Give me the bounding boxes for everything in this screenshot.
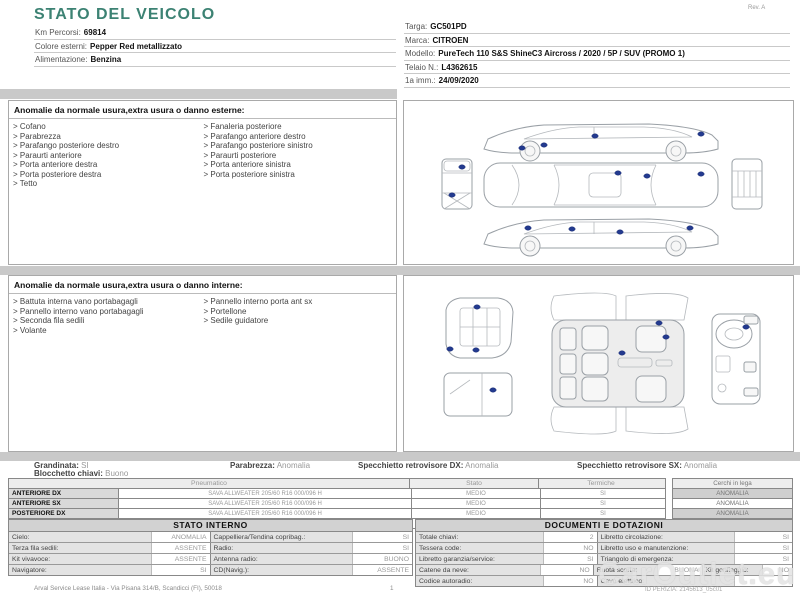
info-label: Alimentazione:: [35, 55, 87, 64]
damage-marker: [743, 325, 749, 329]
interior-damage-list-right: Pannello interno porta ant sxPortelloneS…: [203, 297, 392, 335]
detail-value: SI: [152, 565, 211, 575]
exterior-diagram-svg: [404, 101, 793, 264]
detail-label: Cappelliera/Tendina copribag.:: [211, 532, 354, 542]
damage-marker: [490, 388, 496, 392]
detail-value: BUONO: [353, 554, 412, 564]
vehicle-info-row: Targa:GC501PD: [404, 20, 790, 34]
damage-item: Porta posteriore sinistra: [203, 170, 392, 180]
info-value: 69814: [84, 28, 106, 37]
detail-row: Tessera code:NOLibretto uso e manutenzio…: [416, 543, 792, 554]
detail-value: ASSENTE: [152, 554, 211, 564]
alloy-row: ANOMALIA: [673, 489, 792, 499]
parcel-shelf-view: [444, 373, 512, 416]
detail-label: Terza fila sedili:: [9, 543, 152, 553]
info-value: Pepper Red metallizzato: [90, 42, 182, 51]
exterior-diagram: [403, 100, 794, 265]
car-plan-view: [484, 163, 718, 207]
perizia-id: ID PERIZIA: 2145613_05c01: [645, 587, 722, 593]
documenti-title: DOCUMENTI E DOTAZIONI: [416, 520, 792, 532]
detail-label: Radio:: [211, 543, 354, 553]
tyre-header-stato: Stato: [410, 479, 539, 488]
tyre-cell: SI: [541, 489, 665, 498]
stato-interno-table: STATO INTERNO Cielo:ANOMALIACappelliera/…: [8, 519, 413, 576]
tyre-row: ANTERIORE SXSAVA ALLWEATER 205/60 R16 00…: [9, 499, 665, 509]
exterior-damage-list-right: Fanaleria posterioreParafango anteriore …: [203, 122, 392, 189]
divider-band: [0, 89, 397, 99]
detail-row: Navigatore:SICD(Navig.):ASSENTE: [9, 565, 412, 575]
damage-item: Parafango posteriore destro: [13, 141, 203, 151]
info-value: L4362615: [441, 63, 477, 72]
damage-marker: [541, 143, 547, 147]
tyre-row: ANTERIORE DXSAVA ALLWEATER 205/60 R16 00…: [9, 489, 665, 499]
damage-item: Tetto: [13, 179, 203, 189]
detail-label: Codice autoradio:: [416, 576, 544, 586]
detail-row: Totale chiavi:2Libretto circolazione:SI: [416, 532, 792, 543]
info-value: 24/09/2020: [439, 76, 479, 85]
interior-damage-list-left: Battuta interna vano portabagagliPannell…: [13, 297, 203, 335]
damage-item: Paraurti anteriore: [13, 151, 203, 161]
damage-marker: [698, 172, 704, 176]
alloy-row: ANOMALIA: [673, 499, 792, 509]
damage-item: Portellone: [203, 307, 392, 317]
vehicle-info-row: Alimentazione:Benzina: [34, 53, 396, 67]
alloy-cell: ANOMALIA: [673, 489, 792, 498]
damage-item: Seconda fila sedili: [13, 316, 203, 326]
exterior-damage-markers: [449, 132, 704, 234]
damage-marker: [473, 348, 479, 352]
tyre-cell: ANTERIORE SX: [9, 499, 119, 508]
detail-label: Totale chiavi:: [416, 532, 544, 542]
detail-label: Libretto circolazione:: [598, 532, 736, 542]
damage-item: Pannello interno vano portabagagli: [13, 307, 203, 317]
damage-marker: [656, 321, 662, 325]
interior-anomalies-box: Anomalie da normale usura,extra usura o …: [8, 275, 397, 452]
damage-item: Parafango anteriore destro: [203, 132, 392, 142]
car-side-view-bottom: [484, 219, 718, 256]
detail-row: Kit vivavoce:ASSENTEAntenna radio:BUONO: [9, 554, 412, 565]
damage-marker: [698, 132, 704, 136]
divider-band: [0, 266, 800, 275]
damage-marker: [525, 226, 531, 230]
tyre-header-pneumatico: Pneumatico: [9, 479, 410, 488]
summary-specchietto-sx: Specchietto retrovisore SX: Anomalia: [577, 461, 717, 470]
interior-diagram-svg: [404, 276, 793, 451]
tyre-cell: SI: [541, 499, 665, 508]
tyre-cell: ANTERIORE DX: [9, 489, 119, 498]
detail-value: SI: [735, 543, 792, 553]
footer-page-number: 1: [390, 585, 394, 592]
vehicle-info-row: Colore esterni:Pepper Red metallizzato: [34, 40, 396, 54]
damage-item: Pannello interno porta ant sx: [203, 297, 392, 307]
damage-marker: [459, 165, 465, 169]
detail-row: Terza fila sedili:ASSENTERadio:SI: [9, 543, 412, 554]
detail-value: SI: [353, 532, 412, 542]
alloy-cell: ANOMALIA: [673, 509, 792, 518]
damage-marker: [569, 227, 575, 231]
damage-item: Paraurti posteriore: [203, 151, 392, 161]
damage-marker: [592, 134, 598, 138]
vehicle-info-row: Marca:CITROEN: [404, 34, 790, 48]
tyre-header-cerchi: Cerchi in lega: [673, 479, 792, 488]
info-value: GC501PD: [430, 22, 466, 31]
info-label: Marca:: [405, 36, 429, 45]
tyre-cell: MEDIO: [412, 509, 541, 518]
detail-value: ASSENTE: [353, 565, 412, 575]
detail-value: NO: [544, 576, 598, 586]
damage-item: Cofano: [13, 122, 203, 132]
dashboard-view: [712, 314, 760, 404]
info-label: Modello:: [405, 49, 435, 58]
detail-label: Libretto uso e manutenzione:: [598, 543, 736, 553]
car-rear-view: [732, 159, 762, 209]
exterior-anomalies-title: Anomalie da normale usura,extra usura o …: [9, 101, 396, 119]
exterior-damage-list-left: CofanoParabrezzaParafango posteriore des…: [13, 122, 203, 189]
detail-label: CD(Navig.):: [211, 565, 354, 575]
vehicle-info-row: 1a imm.:24/09/2020: [404, 74, 790, 88]
revision-label: Rev. A: [748, 5, 765, 11]
alloy-cell: ANOMALIA: [673, 499, 792, 508]
tyre-row: POSTERIORE DXSAVA ALLWEATER 205/60 R16 0…: [9, 509, 665, 519]
detail-label: Antenna radio:: [211, 554, 354, 564]
damage-marker: [617, 230, 623, 234]
alloy-row: ANOMALIA: [673, 509, 792, 519]
cabin-plan-view: [551, 293, 688, 434]
tyre-cell: SAVA ALLWEATER 205/60 R16 000/096 H: [119, 499, 412, 508]
detail-value: ASSENTE: [152, 543, 211, 553]
damage-marker: [644, 174, 650, 178]
car-front-view: [442, 159, 472, 209]
footer-company: Arval Service Lease Italia - Via Pisana …: [34, 585, 222, 592]
detail-row: Cielo:ANOMALIACappelliera/Tendina coprib…: [9, 532, 412, 543]
detail-label: Navigatore:: [9, 565, 152, 575]
interior-diagram: [403, 275, 794, 452]
summary-specchietto-dx: Specchietto retrovisore DX: Anomalia: [358, 461, 499, 470]
info-value: PureTech 110 S&S ShineC3 Aircross / 2020…: [438, 49, 685, 58]
damage-marker: [687, 226, 693, 230]
info-value: Benzina: [90, 55, 121, 64]
damage-marker: [474, 305, 480, 309]
damage-marker: [447, 347, 453, 351]
divider-band: [0, 452, 800, 461]
vehicle-info-left: Km Percorsi:69814Colore esterni:Pepper R…: [34, 26, 396, 67]
damage-item: Battuta interna vano portabagagli: [13, 297, 203, 307]
detail-value: SI: [735, 532, 792, 542]
summary-blocchetto: Blocchetto chiavi: Buono: [34, 469, 128, 478]
damage-marker: [615, 171, 621, 175]
damage-item: Porta anteriore sinistra: [203, 160, 392, 170]
info-label: Telaio N.:: [405, 63, 438, 72]
interior-anomalies-title: Anomalie da normale usura,extra usura o …: [9, 276, 396, 294]
detail-value: SI: [544, 554, 598, 564]
detail-label: Tessera code:: [416, 543, 544, 553]
vehicle-info-row: Telaio N.:L4362615: [404, 61, 790, 75]
detail-value: NO: [541, 565, 593, 575]
damage-marker: [663, 335, 669, 339]
damage-item: Parabrezza: [13, 132, 203, 142]
info-label: 1a imm.:: [405, 76, 436, 85]
tyre-cell: POSTERIORE DX: [9, 509, 119, 518]
info-value: CITROEN: [432, 36, 468, 45]
tyre-header-termiche: Termiche: [539, 479, 663, 488]
detail-value: 2: [544, 532, 598, 542]
page-title: STATO DEL VEICOLO: [34, 6, 215, 24]
vehicle-condition-report: STATO DEL VEICOLO Rev. A Km Percorsi:698…: [0, 0, 800, 600]
stato-interno-title: STATO INTERNO: [9, 520, 412, 532]
summary-parabrezza: Parabrezza: Anomalia: [230, 461, 310, 470]
damage-item: Fanaleria posteriore: [203, 122, 392, 132]
tyre-cell: SAVA ALLWEATER 205/60 R16 000/096 H: [119, 489, 412, 498]
damage-marker: [619, 351, 625, 355]
detail-label: Cielo:: [9, 532, 152, 542]
tyre-cell: SI: [541, 509, 665, 518]
info-label: Km Percorsi:: [35, 28, 81, 37]
tyre-cell: MEDIO: [412, 489, 541, 498]
car-side-view-top: [484, 124, 718, 161]
vehicle-info-right: Targa:GC501PDMarca:CITROENModello:PureTe…: [404, 20, 790, 88]
detail-label: Libretto garanzia/service:: [416, 554, 544, 564]
damage-item: Porta anteriore destra: [13, 160, 203, 170]
damage-marker: [519, 146, 525, 150]
damage-marker: [449, 193, 455, 197]
damage-item: Volante: [13, 326, 203, 336]
detail-value: NO: [544, 543, 598, 553]
detail-label: Catene da neve:: [416, 565, 541, 575]
damage-item: Parafango posteriore sinistro: [203, 141, 392, 151]
detail-value: ANOMALIA: [152, 532, 211, 542]
tyre-cell: SAVA ALLWEATER 205/60 R16 000/096 H: [119, 509, 412, 518]
info-label: Colore esterni:: [35, 42, 87, 51]
exterior-anomalies-box: Anomalie da normale usura,extra usura o …: [8, 100, 397, 265]
vehicle-info-row: Modello:PureTech 110 S&S ShineC3 Aircros…: [404, 47, 790, 61]
damage-item: Porta posteriore destra: [13, 170, 203, 180]
damage-item: Sedile guidatore: [203, 316, 392, 326]
detail-label: Kit vivavoce:: [9, 554, 152, 564]
detail-value: SI: [353, 543, 412, 553]
info-label: Targa:: [405, 22, 427, 31]
tyre-cell: MEDIO: [412, 499, 541, 508]
vehicle-info-row: Km Percorsi:69814: [34, 26, 396, 40]
